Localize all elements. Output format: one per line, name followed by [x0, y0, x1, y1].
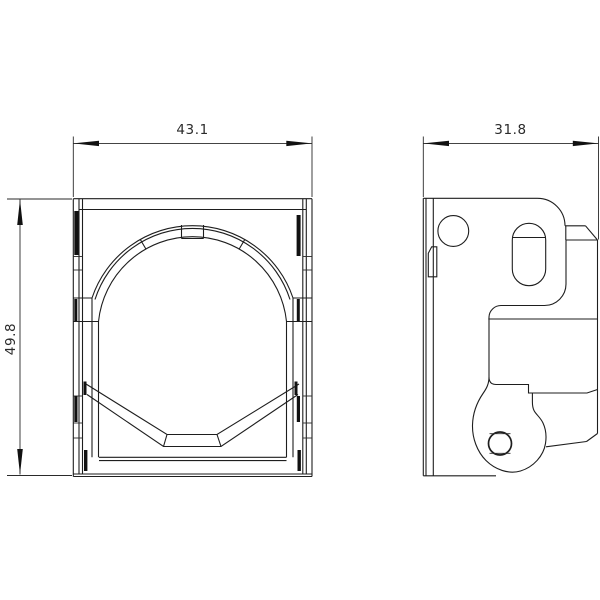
dim-arrow-right — [573, 141, 599, 146]
dim-label-front-width: 43.1 — [176, 122, 208, 138]
dim-front-width: 43.1 — [73, 122, 312, 197]
latch-hole — [438, 216, 469, 247]
front-bottom-rail — [99, 457, 287, 460]
dim-arrow-left — [423, 141, 449, 146]
chevron-guard — [86, 384, 299, 447]
rail-tick-lines — [73, 257, 312, 439]
dim-arrow-left — [73, 141, 99, 146]
dim-label-front-height: 49.8 — [3, 323, 19, 355]
plate-clip — [428, 247, 437, 277]
dim-arrow-bottom — [17, 449, 23, 475]
drawing-canvas: 43.1 31.8 49.8 — [0, 0, 600, 600]
bottom-tab — [472, 377, 545, 472]
dim-front-height: 49.8 — [3, 199, 72, 476]
mounting-plate — [423, 198, 496, 476]
stadium-slot — [512, 223, 545, 285]
front-view — [73, 199, 312, 477]
technical-drawing: 43.1 31.8 49.8 — [0, 0, 600, 600]
dim-arrow-top — [17, 200, 23, 226]
holder-hook — [489, 240, 598, 393]
dim-arrow-right — [286, 141, 312, 146]
side-view — [423, 198, 597, 476]
dim-side-depth: 31.8 — [423, 122, 598, 240]
latch-marks — [74, 211, 301, 471]
bezel-arcs — [73, 226, 312, 458]
side-outline — [423, 198, 597, 446]
screw-hole — [489, 432, 512, 455]
dim-label-side-depth: 31.8 — [494, 122, 526, 138]
